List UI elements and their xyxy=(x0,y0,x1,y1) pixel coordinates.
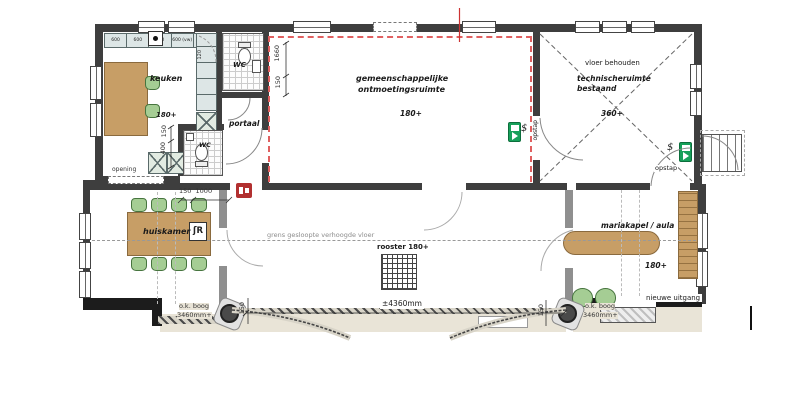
door-closer-symbol: $ xyxy=(667,142,673,154)
window-icon xyxy=(602,21,627,33)
window-icon xyxy=(79,213,91,240)
dim-150: 150 xyxy=(161,125,168,137)
kitchen-unit-label: 600 xyxy=(105,34,127,47)
wall-mid-2 xyxy=(262,183,422,190)
window-icon xyxy=(462,21,496,33)
column xyxy=(220,304,239,323)
toilet-icon xyxy=(195,161,208,167)
dim-150-1000: 150 1000 xyxy=(179,188,212,195)
level-label: 360+ xyxy=(601,110,623,119)
dim-150: 150 xyxy=(538,304,545,316)
window-icon xyxy=(90,66,102,100)
arch-band xyxy=(232,308,566,314)
chair xyxy=(151,257,167,271)
window-icon xyxy=(690,64,702,89)
room-label-portaal: portaal xyxy=(229,120,260,129)
door-closer-symbol: $ xyxy=(521,123,527,135)
wall-keuken-bottom-b xyxy=(163,176,180,183)
exit-sign-icon xyxy=(679,142,692,162)
fire-hose-icon xyxy=(236,183,252,198)
sink-icon xyxy=(252,60,261,73)
helper-dashed-line xyxy=(639,190,640,296)
level-label: 180+ xyxy=(645,262,667,271)
column xyxy=(558,304,577,323)
window-icon xyxy=(575,21,600,33)
label-boog-right: o.k. boog xyxy=(585,303,615,310)
level-label: 180+ xyxy=(156,111,176,119)
altar-cabinet xyxy=(678,191,698,279)
dim-1660: 1660 xyxy=(274,45,281,62)
helper-dashed-line xyxy=(157,192,158,304)
room-label-technical-2: bestaand xyxy=(577,85,616,94)
label-nieuwe-uitgang: nieuwe uitgang xyxy=(644,294,702,302)
dim-400: 400 xyxy=(160,142,167,154)
label-boog-left: o.k. boog xyxy=(179,303,209,310)
chair xyxy=(151,198,167,212)
radiator-badge: ʃR xyxy=(189,222,207,241)
wall-tech-left-lower xyxy=(533,160,540,190)
helper-dashed-line xyxy=(621,190,622,296)
wall-mid-5 xyxy=(690,183,702,190)
window-icon xyxy=(79,242,91,269)
room-label-wc-top: WC xyxy=(233,61,246,69)
room-label-keuken: keuken xyxy=(150,74,182,83)
window-icon xyxy=(690,91,702,116)
opening-dashed xyxy=(108,176,164,184)
wall-tech-left-upper xyxy=(533,24,540,116)
chair xyxy=(191,198,207,212)
label-span-4360: ±4360mm xyxy=(380,300,424,309)
wall-mid-4 xyxy=(576,183,650,190)
cabinet-cross-icon xyxy=(148,152,167,174)
wall-mid-3 xyxy=(466,183,567,190)
wall-mariakapel-left-a xyxy=(565,190,573,228)
window-icon xyxy=(631,21,655,33)
room-label-huiskamer: huiskamer xyxy=(143,227,190,236)
wall-wc-portaal xyxy=(222,92,264,98)
grens-dashed-line xyxy=(92,240,696,241)
note-vloer-behouden: vloer behouden xyxy=(585,59,640,67)
tall-cabinet xyxy=(196,33,217,111)
chair xyxy=(171,257,187,271)
rooster-grid-icon xyxy=(381,254,417,290)
kitchen-unit-label: 600 xyxy=(127,34,149,47)
dim-120: 120 xyxy=(198,50,204,60)
dim-150: 150 xyxy=(239,302,246,314)
room-label-hall-1: gemeenschappelijke xyxy=(356,74,448,83)
scale-tick xyxy=(750,306,752,330)
wall-huiskamer-right-a xyxy=(219,190,227,228)
window-icon xyxy=(79,271,91,298)
label-opstap-door: opstap xyxy=(533,120,540,140)
mariakapel-table xyxy=(563,231,660,255)
helper-dashed-line xyxy=(175,192,176,304)
dim-150: 150 xyxy=(275,76,282,88)
label-boog-left-mm: 3460mm+ xyxy=(177,312,212,319)
room-label-technical-1: technischeruimte xyxy=(577,75,651,84)
stove-icon xyxy=(148,31,163,46)
window-icon xyxy=(293,21,331,33)
label-opening: opening xyxy=(112,167,136,174)
room-label-mariakapel: mariakapel / aula xyxy=(601,222,674,231)
window-icon xyxy=(90,103,102,137)
window-icon xyxy=(168,21,195,33)
label-boog-right-mm: 3460mm+ xyxy=(583,312,618,319)
kitchen-unit-label: 600 (vw) xyxy=(172,34,194,47)
room-label-hall-2: ontmoetingsruimte xyxy=(358,85,445,94)
stairs-icon xyxy=(702,134,742,172)
label-rooster: rooster 180+ xyxy=(377,243,429,251)
porch-step xyxy=(478,316,528,328)
sink-icon xyxy=(186,133,194,141)
exit-sign-icon xyxy=(508,122,521,142)
wall-bottom-left xyxy=(83,298,161,310)
kitchen-table xyxy=(104,62,148,136)
label-opstap-exit: opstap xyxy=(654,165,678,172)
floor-plan: 600 600 600 600 (vw) 600 ʃR xyxy=(0,0,811,402)
chair xyxy=(191,257,207,271)
former-opening-dashed xyxy=(373,22,417,32)
chair xyxy=(131,257,147,271)
room-label-wc-bottom: WC xyxy=(199,142,211,149)
chair xyxy=(131,198,147,212)
label-grens: grens gesloopte verhoogde vloer xyxy=(265,232,376,239)
chair xyxy=(171,198,187,212)
level-label: 180+ xyxy=(400,110,422,119)
